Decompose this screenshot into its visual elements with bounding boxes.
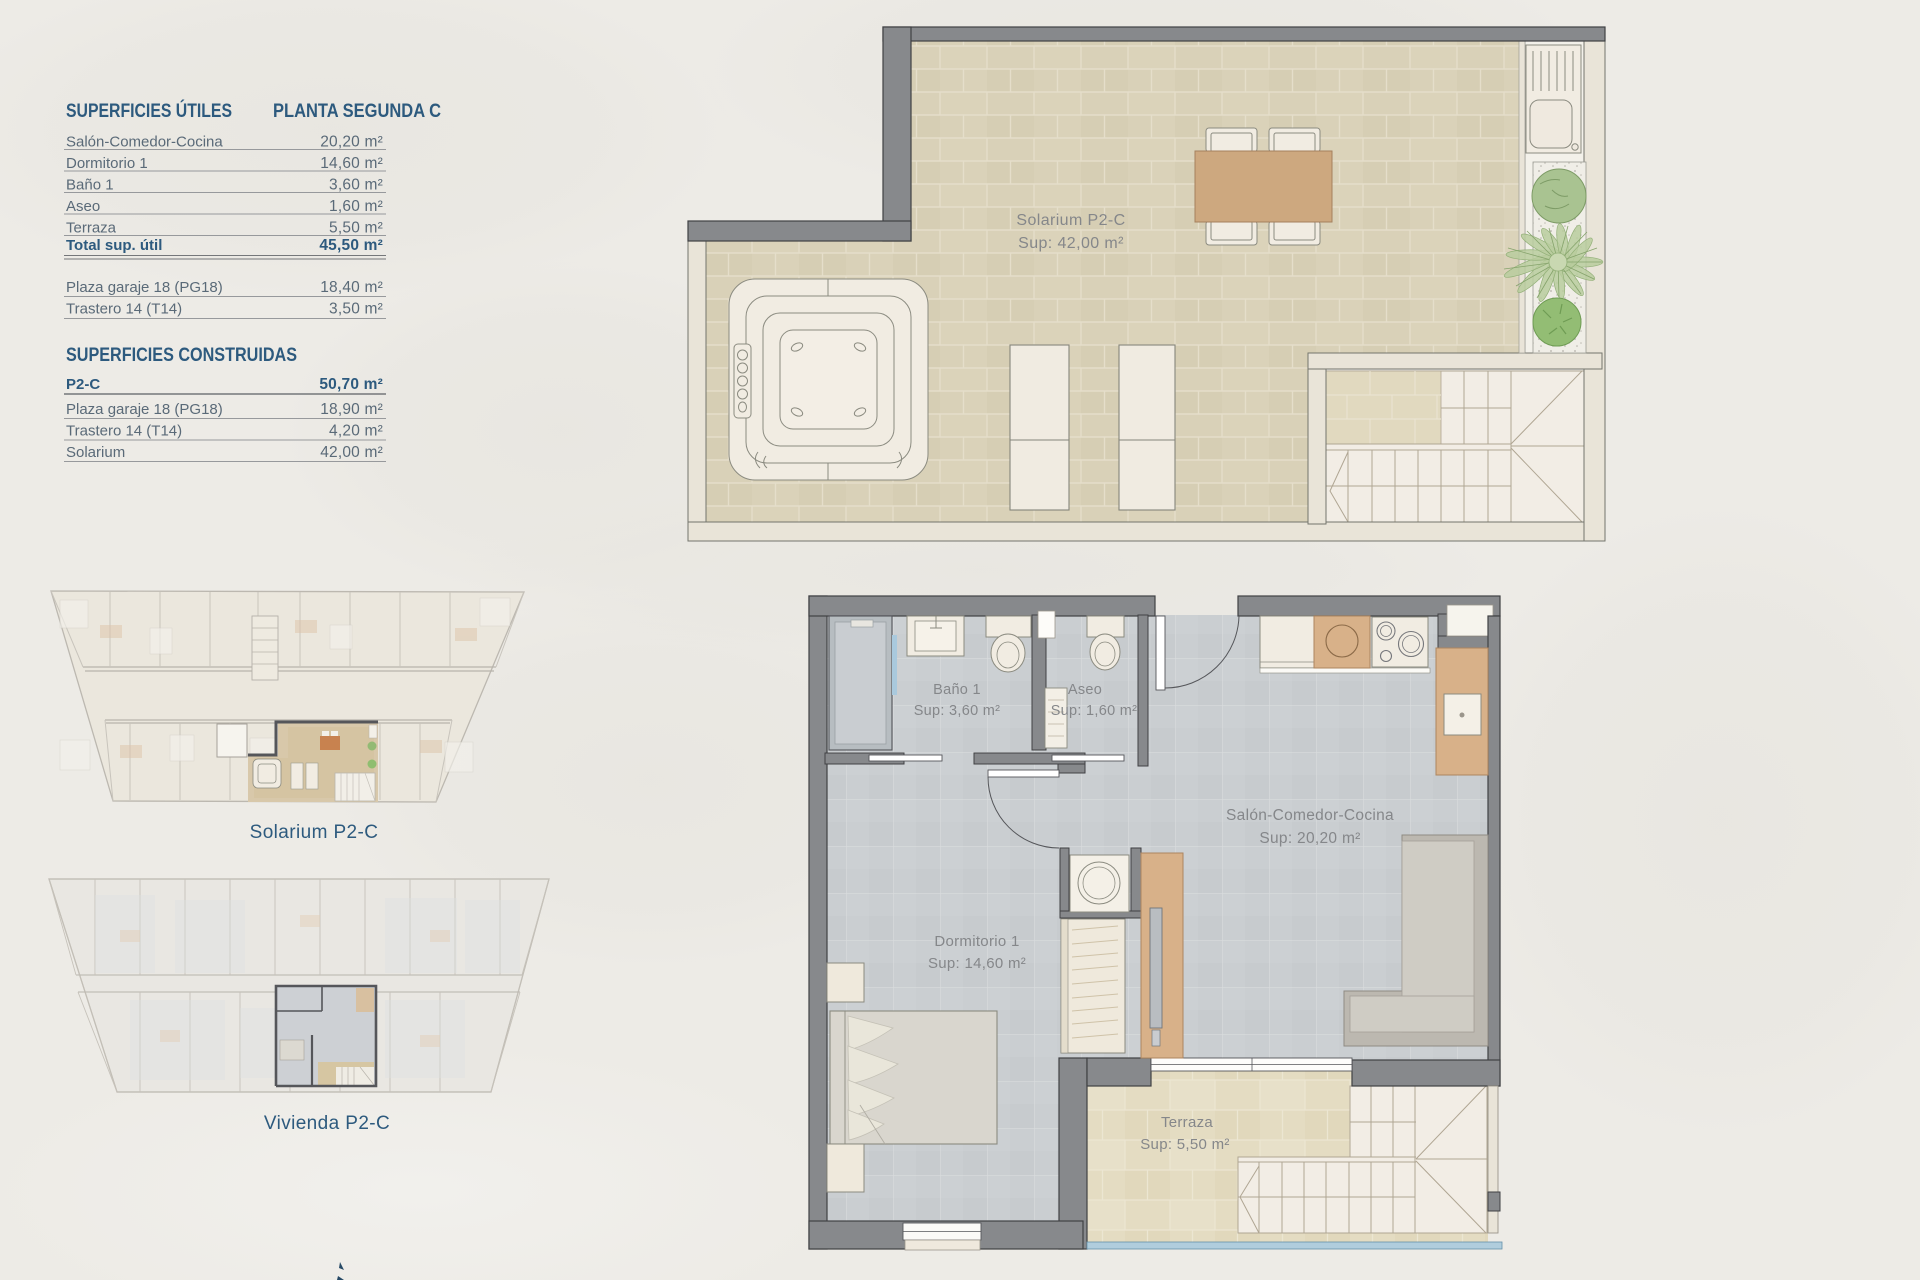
svg-text:5,50 m²: 5,50 m²	[329, 220, 383, 237]
svg-text:SUPERFICIES ÚTILES: SUPERFICIES ÚTILES	[66, 100, 232, 122]
svg-text:Plaza garaje 18 (PG18): Plaza garaje 18 (PG18)	[66, 279, 223, 296]
svg-text:50,70 m²: 50,70 m²	[319, 376, 383, 393]
svg-text:3,60 m²: 3,60 m²	[329, 177, 383, 194]
svg-text:4,20 m²: 4,20 m²	[329, 423, 383, 440]
svg-text:Sup: 14,60 m²: Sup: 14,60 m²	[928, 955, 1026, 972]
svg-text:PLANTA SEGUNDA C: PLANTA SEGUNDA C	[273, 101, 441, 122]
svg-text:45,50 m²: 45,50 m²	[319, 237, 383, 254]
svg-text:Solarium P2-C: Solarium P2-C	[250, 822, 379, 843]
svg-text:Salón-Comedor-Cocina: Salón-Comedor-Cocina	[66, 134, 223, 151]
svg-text:18,90 m²: 18,90 m²	[320, 401, 383, 418]
svg-text:Baño 1: Baño 1	[933, 682, 981, 698]
svg-text:1,60 m²: 1,60 m²	[329, 198, 383, 215]
svg-text:Sup: 20,20 m²: Sup: 20,20 m²	[1259, 830, 1360, 847]
svg-text:Sup: 42,00 m²: Sup: 42,00 m²	[1018, 235, 1124, 252]
svg-text:Dormitorio 1: Dormitorio 1	[66, 155, 148, 172]
svg-text:Sup: 5,50 m²: Sup: 5,50 m²	[1140, 1136, 1229, 1153]
svg-text:Sup: 1,60 m²: Sup: 1,60 m²	[1051, 703, 1138, 719]
svg-text:Solarium P2-C: Solarium P2-C	[1016, 212, 1125, 229]
svg-text:14,60 m²: 14,60 m²	[320, 155, 383, 172]
svg-text:Vivienda P2-C: Vivienda P2-C	[264, 1113, 390, 1134]
svg-text:3,50 m²: 3,50 m²	[329, 301, 383, 318]
svg-text:Plaza garaje 18 (PG18): Plaza garaje 18 (PG18)	[66, 401, 223, 418]
svg-text:P2-C: P2-C	[66, 376, 100, 393]
svg-text:Total sup. útil: Total sup. útil	[66, 237, 162, 254]
svg-text:18,40 m²: 18,40 m²	[320, 279, 383, 296]
svg-text:42,00 m²: 42,00 m²	[320, 444, 383, 461]
svg-text:Aseo: Aseo	[1068, 682, 1102, 698]
svg-text:Terraza: Terraza	[66, 220, 117, 237]
svg-text:Dormitorio 1: Dormitorio 1	[934, 933, 1019, 950]
svg-text:Baño 1: Baño 1	[66, 177, 114, 194]
svg-text:Sup: 3,60 m²: Sup: 3,60 m²	[914, 703, 1001, 719]
svg-text:20,20 m²: 20,20 m²	[320, 134, 383, 151]
svg-text:Trastero 14 (T14): Trastero 14 (T14)	[66, 423, 182, 440]
svg-text:Trastero 14 (T14): Trastero 14 (T14)	[66, 301, 182, 318]
svg-text:Solarium: Solarium	[66, 444, 125, 461]
svg-text:Salón-Comedor-Cocina: Salón-Comedor-Cocina	[1226, 807, 1394, 824]
svg-text:Terraza: Terraza	[1161, 1114, 1213, 1131]
svg-text:Aseo: Aseo	[66, 198, 100, 215]
svg-text:SUPERFICIES CONSTRUIDAS: SUPERFICIES CONSTRUIDAS	[66, 345, 297, 366]
